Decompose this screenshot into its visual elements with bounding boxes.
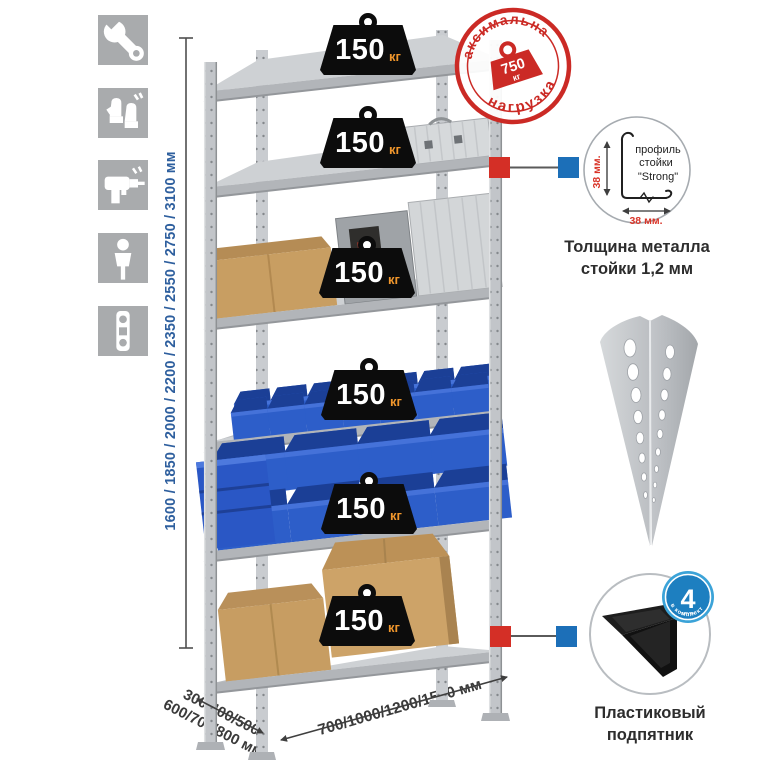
shelving-rack-infographic: 38 мм. 38 мм. профиль стойки "Strong" bbox=[0, 0, 765, 765]
badge-value: 4 bbox=[680, 584, 695, 614]
profile-dim-vertical: 38 мм. bbox=[591, 155, 603, 188]
weight-value: 150 bbox=[335, 127, 385, 160]
weight-unit: кг bbox=[388, 620, 400, 635]
cardboard-box bbox=[204, 235, 337, 319]
weight-value: 150 bbox=[334, 257, 384, 290]
marker-blue-top bbox=[558, 157, 579, 178]
weight-value: 150 bbox=[336, 493, 386, 526]
marker-red-top bbox=[489, 157, 510, 178]
angle-post-image bbox=[600, 315, 698, 546]
marker-blue-bottom bbox=[556, 626, 577, 647]
weight-value: 150 bbox=[334, 605, 384, 638]
callout-bottom bbox=[490, 626, 577, 647]
cardboard-box-left bbox=[216, 582, 331, 681]
weight-badge-shelf-3: 150кг bbox=[319, 236, 415, 302]
weight-unit: кг bbox=[388, 272, 400, 287]
profile-dim-horizontal: 38 мм. bbox=[629, 215, 662, 227]
aluminum-case-large bbox=[408, 193, 502, 296]
height-dimension-line bbox=[179, 38, 193, 648]
weight-unit: кг bbox=[389, 142, 401, 157]
profile-label-1: профиль bbox=[635, 144, 681, 156]
weight-unit: кг bbox=[389, 49, 401, 64]
weight-badge-shelf-5: 150кг bbox=[321, 472, 417, 538]
weight-value: 150 bbox=[335, 34, 385, 67]
weight-unit: кг bbox=[390, 508, 402, 523]
width-dimension-line bbox=[281, 677, 507, 740]
marker-red-bottom bbox=[490, 626, 511, 647]
callout-top bbox=[489, 157, 579, 178]
profile-label-2: стойки bbox=[639, 157, 673, 169]
weight-badge-shelf-4: 150кг bbox=[321, 358, 417, 424]
weight-value: 150 bbox=[336, 379, 386, 412]
max-load-stamp: максимальная нагрузка 750 кг bbox=[443, 0, 583, 136]
weight-badge-shelf-6: 150кг bbox=[319, 584, 415, 650]
weight-badge-shelf-1: 150кг bbox=[320, 13, 416, 79]
profile-label-3: "Strong" bbox=[638, 171, 678, 183]
profile-detail-circle: 38 мм. 38 мм. профиль стойки "Strong" bbox=[584, 117, 690, 227]
weight-unit: кг bbox=[390, 394, 402, 409]
weight-badge-shelf-2: 150кг bbox=[320, 106, 416, 172]
